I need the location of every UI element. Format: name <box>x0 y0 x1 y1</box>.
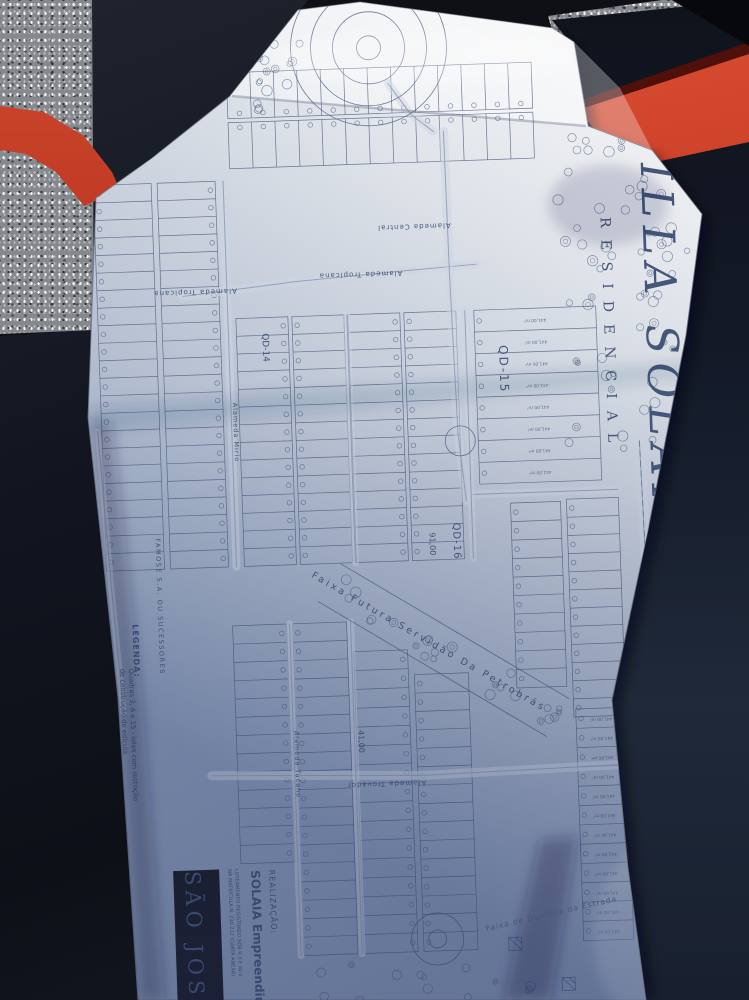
tree-icon <box>164 100 167 103</box>
lot-area-label: 441,00 m² <box>524 317 547 324</box>
site-plan-paper: 441,00 m²441,00 m²441,00 m²441,00 m²441,… <box>0 0 749 1000</box>
tree-icon <box>690 190 697 197</box>
tree-icon <box>220 15 227 22</box>
lot-area-label: 441,00 m² <box>525 360 548 367</box>
tree-icon <box>243 59 253 69</box>
tree-icon <box>254 38 260 44</box>
tree-icon <box>217 14 227 24</box>
lot-area-label: 441,00 m² <box>524 338 547 345</box>
photo-of-site-plan: 441,00 m²441,00 m²441,00 m²441,00 m²441,… <box>0 0 749 1000</box>
tree-icon <box>178 12 188 22</box>
tree-icon <box>163 99 169 105</box>
tree-icon <box>688 160 698 170</box>
tree-icon <box>145 80 151 86</box>
quadra-label-14: QD-14 <box>259 333 270 362</box>
street-name-final: Alameda Final <box>653 622 663 684</box>
tree-icon <box>184 36 190 42</box>
dim-25: 25,00 <box>645 907 655 930</box>
tree-icon <box>155 79 163 87</box>
tree-icon <box>147 82 150 85</box>
